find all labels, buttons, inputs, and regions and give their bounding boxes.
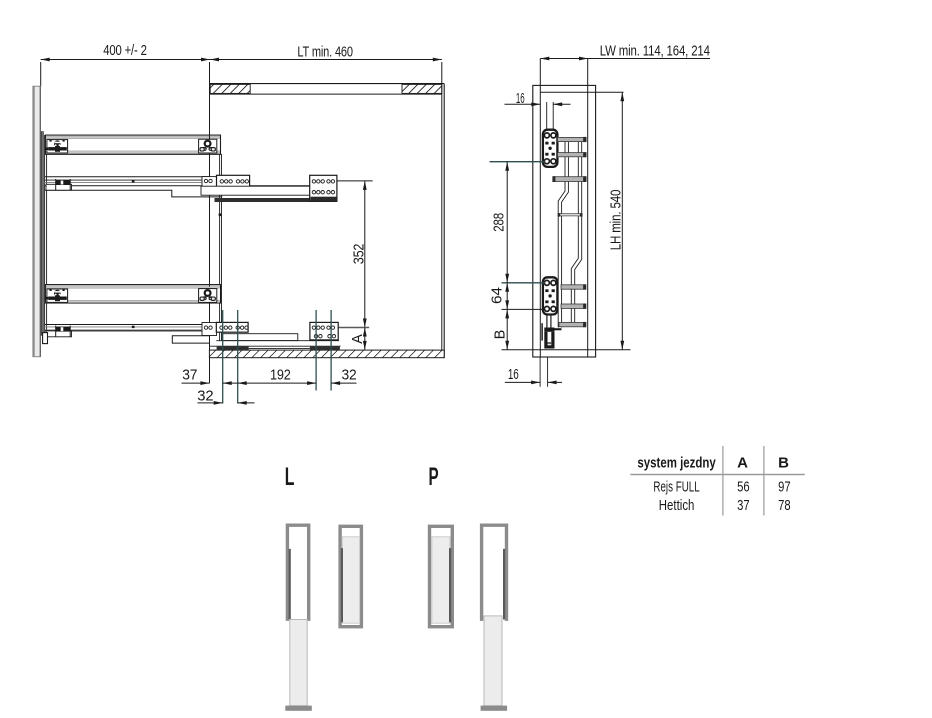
svg-text:B: B <box>493 330 509 339</box>
svg-text:LH min. 540: LH min. 540 <box>609 190 625 251</box>
svg-text:A: A <box>350 334 366 344</box>
svg-text:97: 97 <box>778 478 791 495</box>
svg-text:192: 192 <box>270 368 291 384</box>
svg-text:37: 37 <box>737 497 750 514</box>
svg-text:LT min. 460: LT min. 460 <box>297 44 353 60</box>
svg-text:288: 288 <box>491 213 507 232</box>
svg-text:L: L <box>285 463 295 491</box>
svg-text:400 +/- 2: 400 +/- 2 <box>103 43 147 59</box>
svg-text:P: P <box>429 463 439 491</box>
svg-text:A: A <box>737 454 748 471</box>
svg-text:32: 32 <box>197 389 213 405</box>
svg-text:LW min. 114, 164, 214: LW min. 114, 164, 214 <box>600 43 710 59</box>
svg-text:56: 56 <box>737 478 750 495</box>
svg-text:64: 64 <box>490 287 506 304</box>
svg-text:37: 37 <box>182 368 197 384</box>
svg-text:16: 16 <box>516 91 525 107</box>
svg-text:system jezdny: system jezdny <box>637 454 716 471</box>
svg-text:16: 16 <box>508 367 519 383</box>
svg-text:Rejs FULL: Rejs FULL <box>653 478 699 495</box>
svg-text:352: 352 <box>351 244 367 265</box>
svg-text:78: 78 <box>778 497 791 514</box>
svg-text:32: 32 <box>342 368 357 384</box>
svg-text:Hettich: Hettich <box>659 497 695 514</box>
svg-text:B: B <box>778 454 789 471</box>
